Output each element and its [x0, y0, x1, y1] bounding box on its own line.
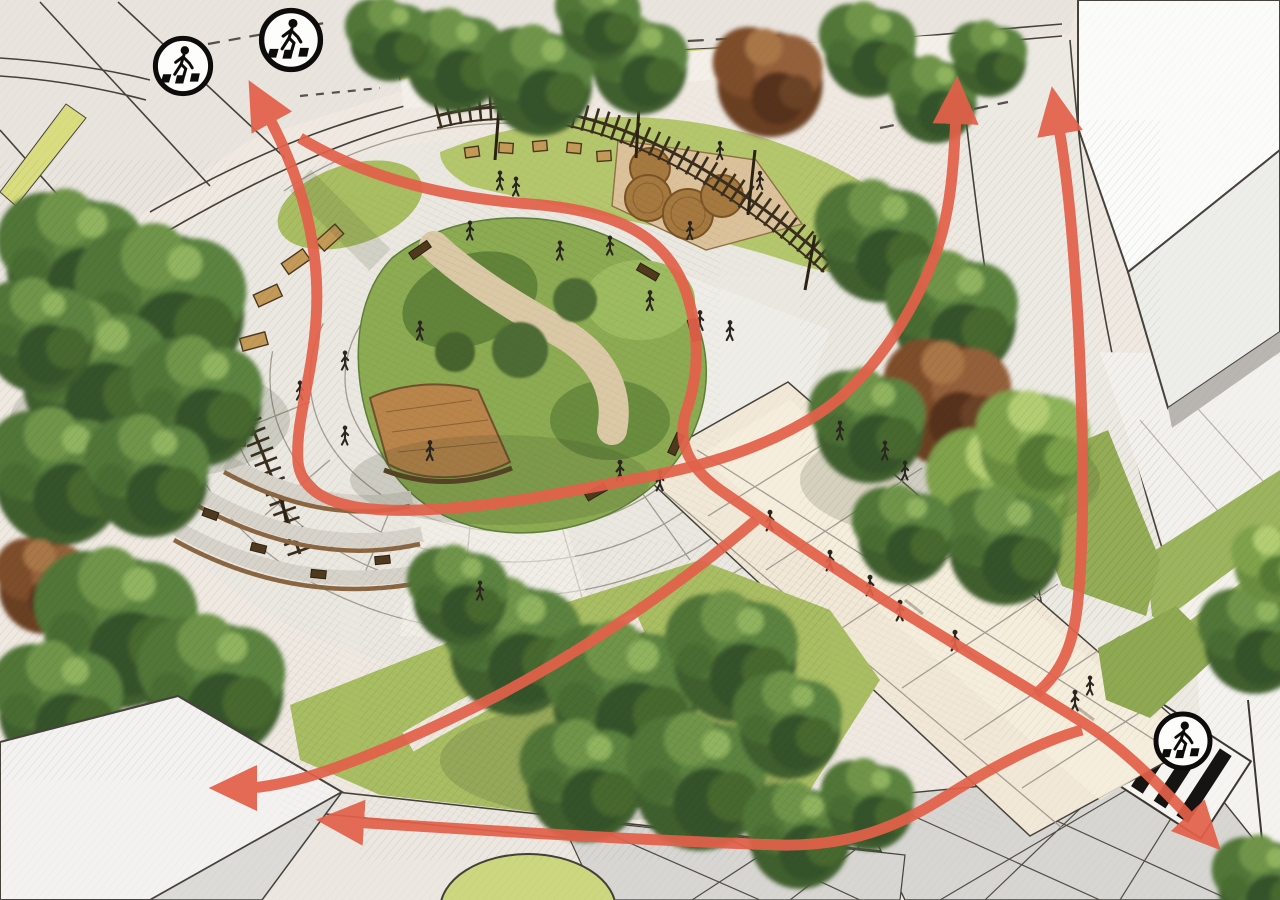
- pedestrian-crossing-icon: [262, 11, 321, 70]
- park-plaza-rendering: [0, 0, 1280, 900]
- aerial-rendering-canvas: [0, 0, 1280, 900]
- crosshatch-texture: [0, 0, 1280, 900]
- pedestrian-crossing-icon: [155, 38, 210, 93]
- pedestrian-crossing-icon: [1156, 714, 1210, 768]
